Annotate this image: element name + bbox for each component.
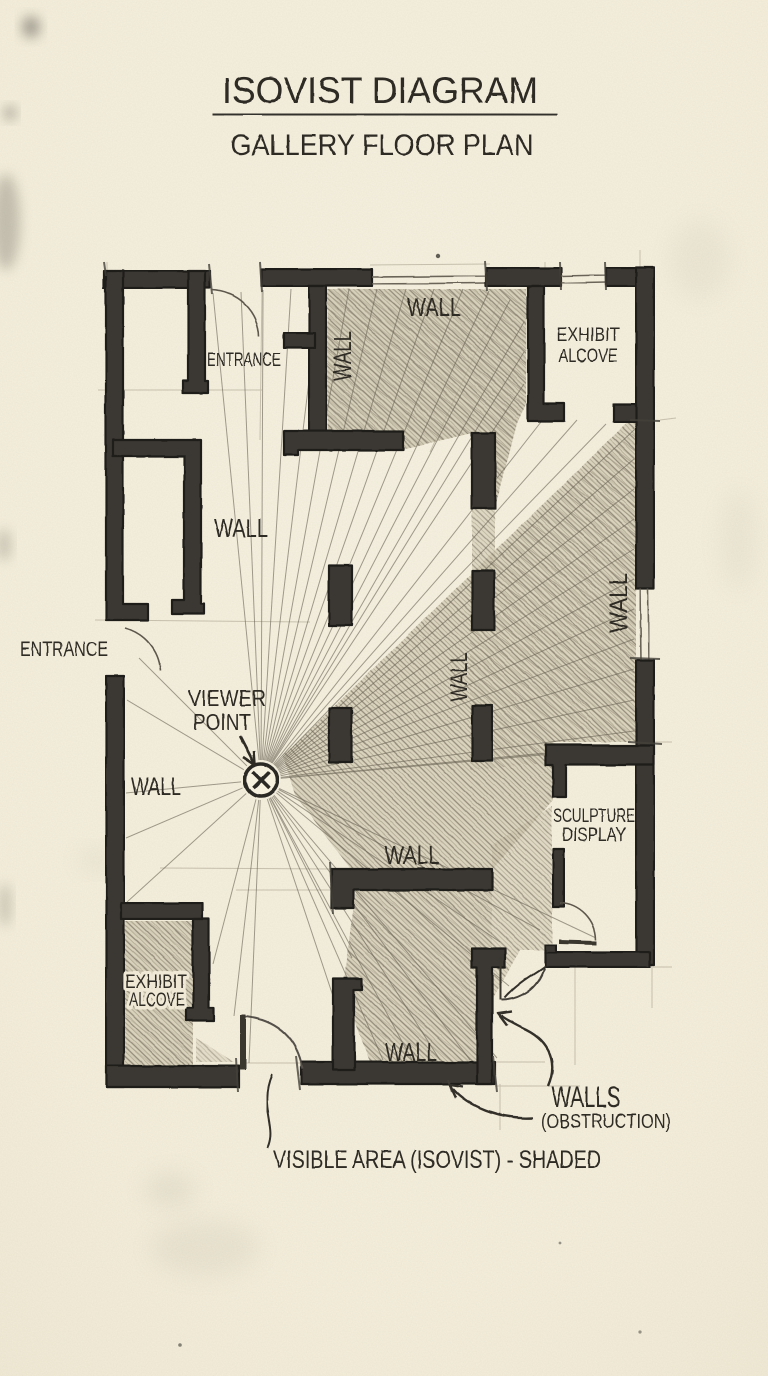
svg-text:EXHIBIT: EXHIBIT [557,324,620,346]
svg-text:ALCOVE: ALCOVE [559,345,618,367]
svg-text:DISPLAY: DISPLAY [562,825,626,846]
svg-text:VISIBLE AREA (ISOVIST) - SHADE: VISIBLE AREA (ISOVIST) - SHADED [273,1146,601,1174]
svg-text:POINT: POINT [193,709,251,735]
svg-text:(OBSTRUCTION): (OBSTRUCTION) [541,1111,671,1133]
svg-text:WALL: WALL [385,840,440,870]
svg-text:ALCOVE: ALCOVE [129,990,185,1011]
svg-text:SCULPTURE: SCULPTURE [553,806,635,827]
svg-text:ISOVIST DIAGRAM: ISOVIST DIAGRAM [222,70,538,111]
svg-text:GALLERY FLOOR PLAN: GALLERY FLOOR PLAN [231,129,534,162]
svg-text:WALL: WALL [407,292,461,322]
svg-text:WALLS: WALLS [552,1081,621,1114]
svg-text:WALL: WALL [605,573,633,633]
svg-text:VIEWER: VIEWER [188,685,266,711]
svg-text:WALL: WALL [131,773,181,801]
svg-text:WALL: WALL [214,513,268,543]
svg-text:WALL: WALL [329,331,357,381]
svg-text:WALL: WALL [446,653,473,702]
svg-text:WALL: WALL [385,1037,437,1067]
svg-text:ENTRANCE: ENTRANCE [207,350,281,371]
svg-text:ENTRANCE: ENTRANCE [20,638,108,661]
